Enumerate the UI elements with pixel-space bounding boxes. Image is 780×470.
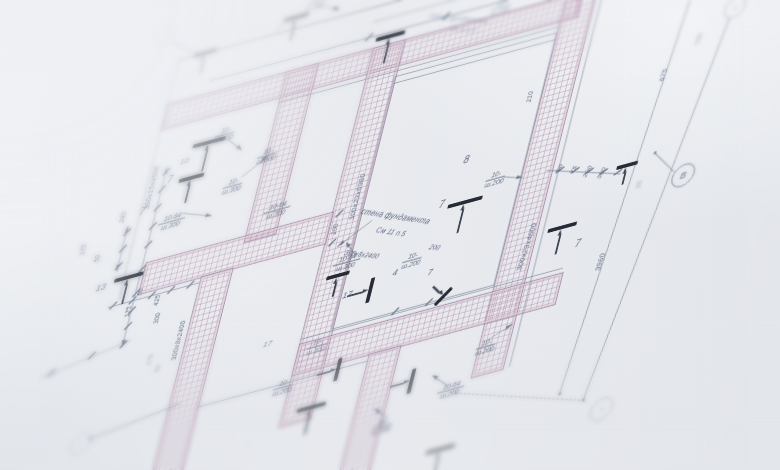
annotation-text: 13 xyxy=(95,282,107,294)
annotation-text: 675 xyxy=(658,68,669,82)
rebar-stem xyxy=(290,25,295,41)
leader-arrow xyxy=(333,6,341,11)
leader-arrow xyxy=(236,144,243,151)
annotation-text: См 11 п.5 xyxy=(375,226,408,238)
rebar-spacing-callout: 10-64ш.300 xyxy=(156,209,187,232)
annotation-text: 7 xyxy=(427,268,434,278)
rebar-spacing-callout: 10-ш.200 xyxy=(400,249,423,270)
annotation-text: 17 xyxy=(262,339,273,349)
axis-bubble xyxy=(587,394,616,424)
drawing-line xyxy=(654,152,674,172)
foundation-reinforcement-plan: стена фундаментаСм 11 п.5стена фундамент… xyxy=(0,0,780,470)
rebar-stem xyxy=(199,61,204,75)
annotation-text: 240 xyxy=(119,211,128,224)
annotation-text: 8 xyxy=(463,154,471,165)
annotation-text: 300 xyxy=(153,312,162,325)
dimension-tick xyxy=(47,369,55,378)
line-end-dot xyxy=(558,392,562,396)
rebar-spacing-callout: 10-ш.300 xyxy=(221,175,244,196)
annotation-text: 75 xyxy=(569,166,579,174)
annotation-text: 425 xyxy=(153,293,162,306)
rebar-spacing-callout: 10-ш.200 xyxy=(484,168,507,189)
rebar-stem xyxy=(457,210,464,234)
annotation-text: 210 xyxy=(526,90,535,103)
leader-arrow xyxy=(115,264,121,272)
annotation-text: 50 xyxy=(93,254,101,263)
leader-arrow xyxy=(205,213,213,218)
axis-bubble xyxy=(722,0,749,21)
annotation-text: 50 xyxy=(136,287,144,296)
axis-bubble xyxy=(68,430,95,457)
drawing-line xyxy=(41,340,132,379)
rebar-stem xyxy=(555,235,561,255)
rebar-stem xyxy=(622,173,626,185)
annotation-text: 17 xyxy=(341,290,353,302)
annotation-text: 200 xyxy=(428,243,442,251)
axis-bubble xyxy=(153,23,177,48)
annotation-text: 175 xyxy=(79,243,88,256)
dashed-line xyxy=(455,393,585,401)
rebar-stem xyxy=(184,186,190,204)
annotation-text: 10 xyxy=(179,156,190,166)
annotation-text: 4 xyxy=(391,268,398,278)
blueprint-photo: стена фундаментаСм 11 п.5стена фундамент… xyxy=(0,0,780,470)
annotation-text: 3960 xyxy=(594,253,607,272)
rebar-stem xyxy=(201,150,208,172)
annotation-text: 398 xyxy=(694,33,704,46)
annotation-text: 95 xyxy=(635,180,644,189)
annotation-text: 7 xyxy=(574,238,582,249)
annotation-text: 175 xyxy=(124,305,133,318)
annotation-text: 7 xyxy=(275,25,282,35)
annotation-text: 7 xyxy=(138,206,146,217)
annotation-text: 175 xyxy=(146,353,155,366)
rebar-stem xyxy=(432,286,439,293)
annotation-text: стена фундамента xyxy=(428,12,490,25)
annotation-text: 7 xyxy=(438,199,446,210)
annotation-text: 7 xyxy=(166,174,174,185)
rebar-stem xyxy=(433,457,439,470)
drawing-line xyxy=(583,17,731,400)
annotation-text: 50 xyxy=(154,364,162,373)
annotation-text: стена фундамента xyxy=(359,207,432,226)
